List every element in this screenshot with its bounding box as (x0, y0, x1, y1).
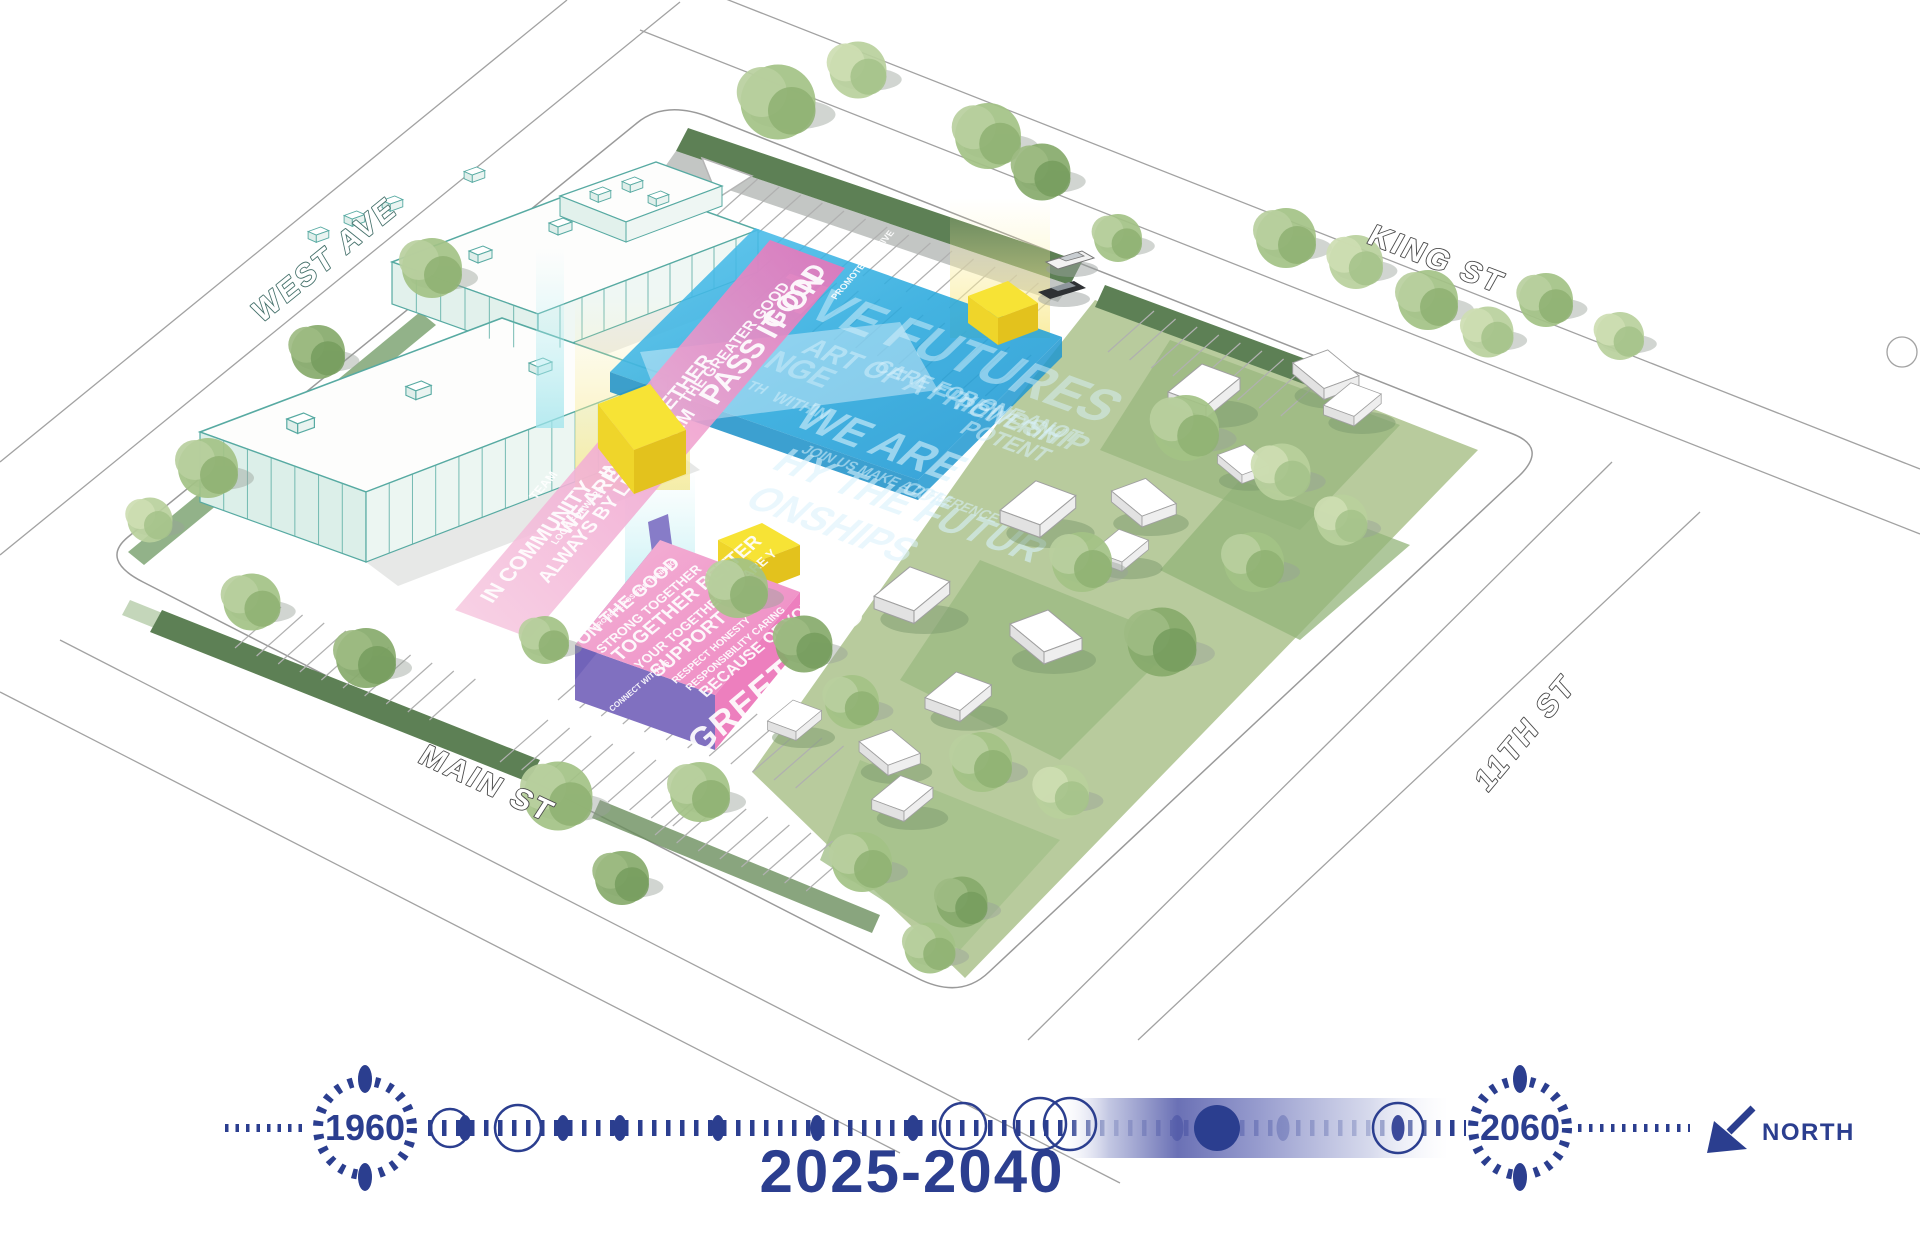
start-year-node (358, 1163, 372, 1191)
light-beam (536, 248, 564, 428)
tree (592, 851, 663, 905)
end-year-node (1513, 1163, 1527, 1191)
street-label-11th-st: 11TH ST (1470, 667, 1582, 798)
timeline: 1960 2060 2025-2040 NORTH (225, 1065, 1855, 1205)
north-arrow-tail (1729, 1108, 1753, 1132)
tree (827, 42, 902, 99)
tree (1516, 273, 1587, 327)
site-diagram: TIVE FUTURES ART OF A FRIENDSHIP NGE CAR… (0, 0, 1920, 1242)
end-year-node (1513, 1065, 1527, 1093)
tree (1253, 208, 1332, 268)
timeline-end-year: 2060 (1480, 1107, 1560, 1148)
tree (1092, 214, 1155, 262)
street-label-west-ave: WEST AVE (248, 190, 403, 330)
rooftop-unit (464, 167, 485, 182)
tree (1460, 307, 1527, 358)
north-label: NORTH (1762, 1119, 1855, 1146)
timeline-node (1392, 1115, 1405, 1141)
tree (1594, 312, 1657, 360)
tree (737, 65, 836, 140)
tree (1011, 144, 1086, 201)
timeline-phase-band (1062, 1098, 1448, 1158)
start-year-node (358, 1065, 372, 1093)
timeline-current-dot (1194, 1105, 1240, 1151)
north-arrow-head (1707, 1121, 1747, 1153)
phase-label: 2025-2040 (760, 1138, 1065, 1205)
timeline-start-year: 1960 (325, 1107, 405, 1148)
roundabout (1887, 337, 1917, 367)
north-indicator: NORTH (1707, 1108, 1855, 1153)
